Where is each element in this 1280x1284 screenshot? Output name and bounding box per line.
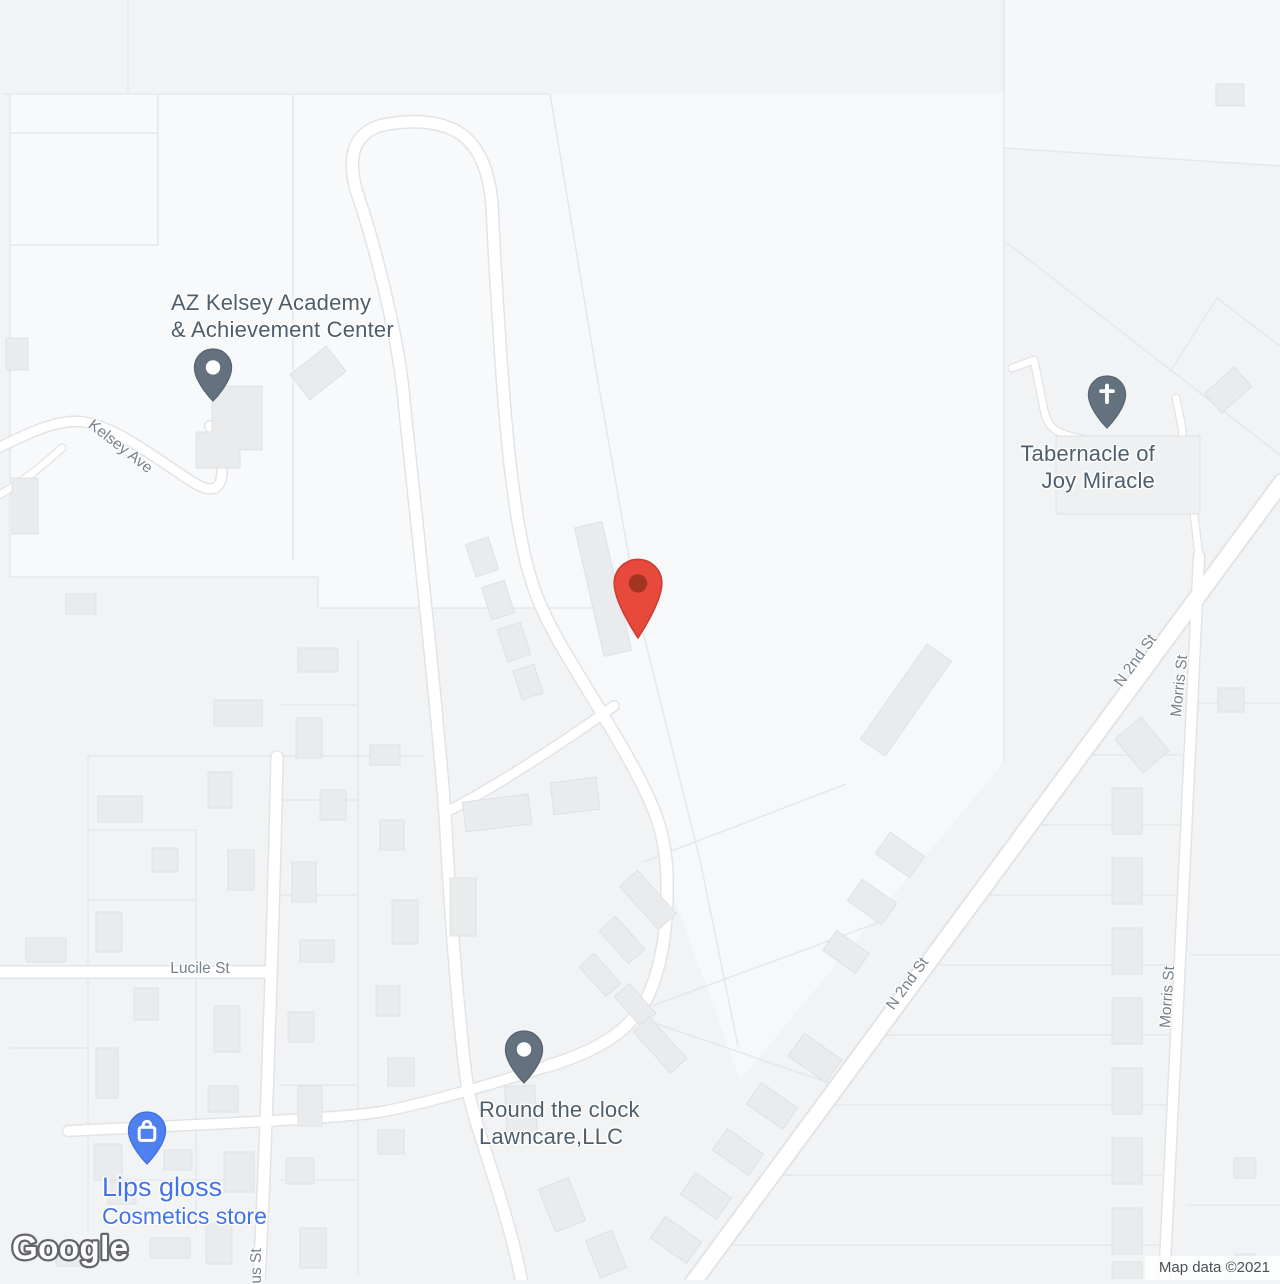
- poi-label-line: AZ Kelsey Academy: [171, 289, 394, 316]
- map-attribution: Map data ©2021: [1145, 1256, 1280, 1280]
- parcel-fills-layer: [10, 0, 1280, 1080]
- destination-marker-pin[interactable]: [611, 557, 665, 641]
- street-label-lucile-st: Lucile St: [170, 960, 229, 978]
- store-category: Cosmetics store: [102, 1203, 267, 1230]
- lips-gloss-store-pin[interactable]: [126, 1110, 168, 1166]
- poi-label-line: & Achievement Center: [171, 316, 394, 343]
- red-marker-icon: [611, 557, 665, 641]
- generic-poi-pin-icon: [503, 1029, 545, 1085]
- lawncare-pin[interactable]: [503, 1029, 545, 1085]
- lawncare-label[interactable]: Round the clock Lawncare,LLC: [479, 1096, 640, 1150]
- tabernacle-label[interactable]: Tabernacle of Joy Miracle: [905, 440, 1155, 494]
- poi-label-line: Round the clock: [479, 1096, 640, 1123]
- map-root: Kelsey Ave Lucile St N 2nd St Morris St …: [0, 0, 1280, 1280]
- church-pin-icon: [1086, 374, 1128, 430]
- az-kelsey-academy-label[interactable]: AZ Kelsey Academy & Achievement Center: [171, 289, 394, 343]
- shopping-bag-pin-icon: [126, 1110, 168, 1166]
- generic-poi-pin-icon: [192, 347, 234, 403]
- az-kelsey-academy-pin[interactable]: [192, 347, 234, 403]
- street-label-columbus-st-partial: us St: [248, 1248, 266, 1283]
- tabernacle-church-pin[interactable]: [1086, 374, 1128, 430]
- poi-label-line: Joy Miracle: [905, 467, 1155, 494]
- poi-label-line: Tabernacle of: [905, 440, 1155, 467]
- store-name: Lips gloss: [102, 1172, 267, 1203]
- poi-label-line: Lawncare,LLC: [479, 1123, 640, 1150]
- google-logo[interactable]: Google: [8, 1228, 148, 1275]
- lips-gloss-label[interactable]: Lips gloss Cosmetics store: [102, 1172, 267, 1230]
- svg-text:Google: Google: [12, 1229, 129, 1266]
- google-logo-icon: Google: [8, 1228, 148, 1270]
